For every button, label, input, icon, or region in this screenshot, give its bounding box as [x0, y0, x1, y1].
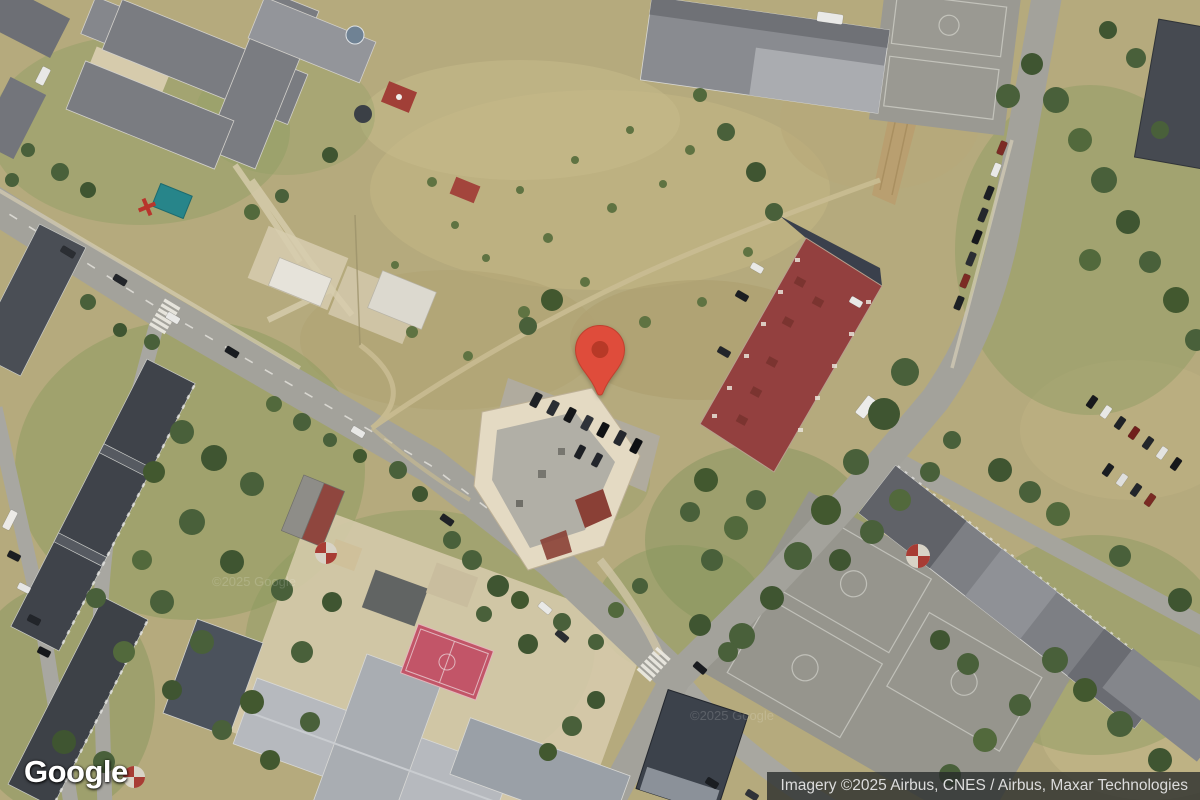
- satellite-map[interactable]: ©2025 Google ©2025 Google Google Imagery…: [0, 0, 1200, 800]
- marker-pin-shape: [576, 326, 625, 396]
- marker-inner-dot: [592, 341, 609, 358]
- imagery-attribution: Imagery ©2025 Airbus, CNES / Airbus, Max…: [767, 772, 1200, 800]
- map-marker-icon[interactable]: [574, 324, 626, 402]
- attribution-text: Imagery ©2025 Airbus, CNES / Airbus, Max…: [781, 777, 1188, 794]
- google-logo[interactable]: Google: [24, 754, 128, 790]
